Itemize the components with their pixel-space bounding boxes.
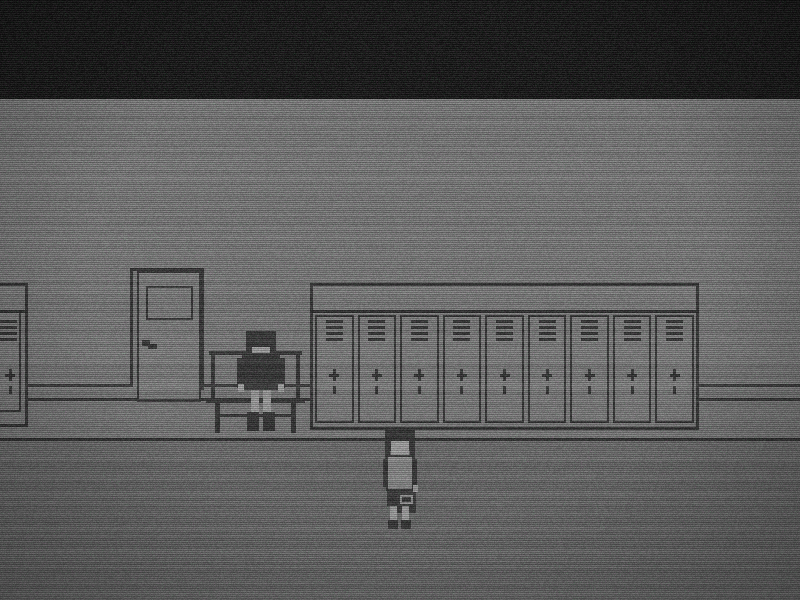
left-locker-door-bottom [0, 410, 21, 412]
locker-vent-slat [326, 326, 343, 329]
locker-vent-slat [411, 320, 428, 323]
ceiling [0, 0, 800, 99]
sitting-character-face [252, 347, 270, 353]
locker-vent-slat [368, 320, 385, 323]
sitting-character-boot [263, 412, 275, 431]
standing-character-arm [413, 459, 417, 487]
standing-character-leg [390, 506, 397, 522]
locker-handle [542, 374, 552, 377]
door-frame-right [201, 268, 204, 390]
locker-handle [585, 374, 595, 377]
hallway-door[interactable] [130, 268, 204, 402]
locker-door[interactable] [358, 315, 397, 423]
locker-doors [315, 315, 694, 423]
bench-leg-left [215, 403, 220, 433]
locker-handle [673, 386, 676, 394]
locker-door[interactable] [485, 315, 524, 423]
locker-door[interactable] [443, 315, 482, 423]
locker-row-right-frame [696, 283, 699, 430]
locker-vent-slat [581, 338, 598, 341]
game-viewport[interactable] [0, 0, 800, 600]
locker-handle [418, 386, 421, 394]
sitting-character-arm [279, 358, 285, 388]
standing-character-shoe [401, 520, 411, 529]
locker-vent-slat [624, 332, 641, 335]
locker-handle [414, 374, 424, 377]
locker-vent-slat [666, 338, 683, 341]
bench-post-left [211, 351, 215, 401]
locker-vent-slat [666, 326, 683, 329]
locker-vent-slat [581, 332, 598, 335]
wall-rail-upper-left [28, 384, 132, 387]
left-locker-unit[interactable] [0, 283, 28, 427]
door-handle [148, 344, 157, 349]
locker-vent-slat [496, 320, 513, 323]
sitting-character-boot [247, 412, 259, 431]
door-frame-left [130, 268, 133, 387]
locker-row-bottom-frame [310, 427, 699, 430]
locker-vent-slat [539, 320, 556, 323]
door-frame-top [130, 268, 204, 271]
locker-handle [627, 374, 637, 377]
locker-handle [329, 374, 339, 377]
standing-character-shoe [388, 520, 398, 529]
left-locker-vent-slat [0, 332, 17, 335]
locker-handle [503, 386, 506, 394]
standing-character-shirt [388, 457, 412, 489]
locker-door[interactable] [400, 315, 439, 423]
standing-character-face [391, 441, 409, 455]
locker-vent-slat [539, 332, 556, 335]
bench-post-right [296, 351, 300, 401]
locker-vent-slat [368, 326, 385, 329]
locker-vent-slat [666, 320, 683, 323]
locker-vent-slat [326, 320, 343, 323]
left-locker-body [0, 283, 28, 427]
left-locker-vent-slat [0, 338, 17, 341]
locker-handle [500, 374, 510, 377]
locker-vent-slat [496, 332, 513, 335]
left-locker-vent-slat [0, 320, 17, 323]
locker-vent-slat [624, 320, 641, 323]
standing-character-hand [413, 485, 418, 492]
sitting-character-leg [251, 390, 259, 415]
locker-vent-slat [624, 326, 641, 329]
standing-character-leg [402, 506, 409, 522]
locker-vent-slat [581, 326, 598, 329]
locker-door[interactable] [613, 315, 652, 423]
locker-vent-slat [453, 332, 470, 335]
locker-door[interactable] [655, 315, 694, 423]
left-locker-handle [9, 386, 12, 394]
locker-handle [588, 386, 591, 394]
locker-vent-slat [496, 338, 513, 341]
left-locker-top [0, 283, 28, 286]
sitting-character-leg [263, 390, 271, 415]
locker-door[interactable] [315, 315, 354, 423]
locker-vent-slat [326, 332, 343, 335]
scene [0, 0, 800, 600]
left-locker-right-frame [25, 283, 28, 427]
locker-vent-slat [624, 338, 641, 341]
locker-handle [375, 386, 378, 394]
locker-vent-slat [411, 326, 428, 329]
locker-vent-slat [326, 338, 343, 341]
school-bag-panel [402, 497, 411, 502]
locker-vent-slat [453, 326, 470, 329]
locker-door[interactable] [528, 315, 567, 423]
locker-vent-slat [666, 332, 683, 335]
locker-vent-slat [539, 326, 556, 329]
locker-handle [546, 386, 549, 394]
locker-handle [457, 374, 467, 377]
locker-vent-slat [411, 332, 428, 335]
locker-handle [631, 386, 634, 394]
sitting-character-hand [238, 384, 244, 392]
locker-vent-slat [368, 332, 385, 335]
left-locker-rail [0, 310, 25, 313]
door-window [148, 288, 191, 318]
left-locker-vent-slat [0, 326, 17, 329]
locker-vent-slat [411, 338, 428, 341]
sitting-character-torso [242, 355, 280, 390]
left-locker-door-edge [19, 313, 21, 412]
locker-vent-slat [581, 320, 598, 323]
locker-handle [670, 374, 680, 377]
locker-row-rail [310, 310, 699, 313]
locker-vent-slat [539, 338, 556, 341]
locker-vent-slat [453, 338, 470, 341]
locker-door[interactable] [570, 315, 609, 423]
locker-row-left-frame [310, 283, 313, 430]
sitting-character-hand [278, 384, 284, 392]
standing-character-arm [383, 459, 387, 487]
left-locker-handle [5, 374, 15, 377]
locker-vent-slat [496, 326, 513, 329]
locker-row[interactable] [310, 283, 699, 430]
locker-vent-slat [368, 338, 385, 341]
locker-row-top-frame [310, 283, 699, 286]
locker-handle [460, 386, 463, 394]
sitting-character-arm [237, 358, 243, 388]
locker-handle [372, 374, 382, 377]
locker-handle [333, 386, 336, 394]
locker-vent-slat [453, 320, 470, 323]
left-locker-bottom [0, 424, 28, 427]
bench-leg-right [291, 403, 296, 433]
